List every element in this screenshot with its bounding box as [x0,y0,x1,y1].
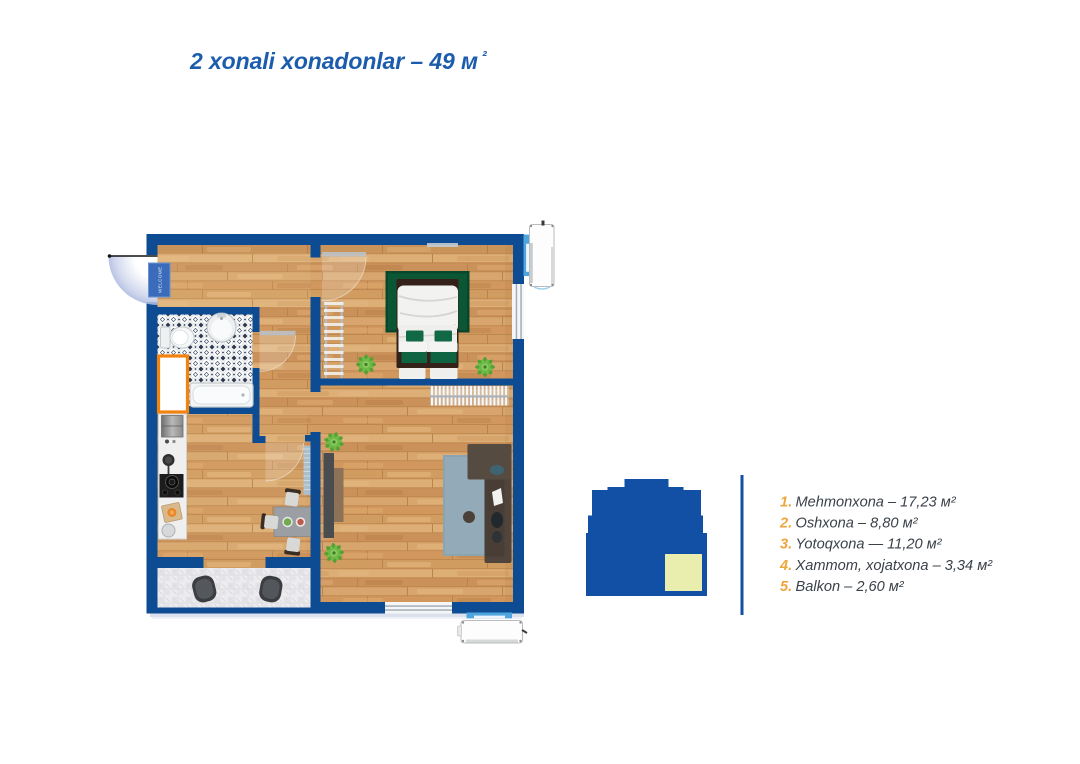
svg-text:Xammom, xojatxona – 3,34 м²: Xammom, xojatxona – 3,34 м² [795,558,994,574]
svg-text:WELCOME: WELCOME [158,266,163,293]
svg-text:Yotoqxona — 11,20 м²: Yotoqxona — 11,20 м² [796,537,943,553]
svg-text:4.: 4. [779,558,792,574]
svg-text:3.: 3. [780,537,792,553]
svg-text:Balkon – 2,60 м²: Balkon – 2,60 м² [796,579,905,595]
svg-text:5.: 5. [780,579,792,595]
svg-text:Oshxona – 8,80 м²: Oshxona – 8,80 м² [796,516,919,532]
svg-text:1.: 1. [780,495,792,511]
svg-text:Mehmonxona – 17,23 м²: Mehmonxona – 17,23 м² [796,495,957,511]
svg-text:2.: 2. [779,516,792,532]
svg-text:2 xonali xonadonlar – 49 м ²: 2 xonali xonadonlar – 49 м ² [189,48,488,74]
